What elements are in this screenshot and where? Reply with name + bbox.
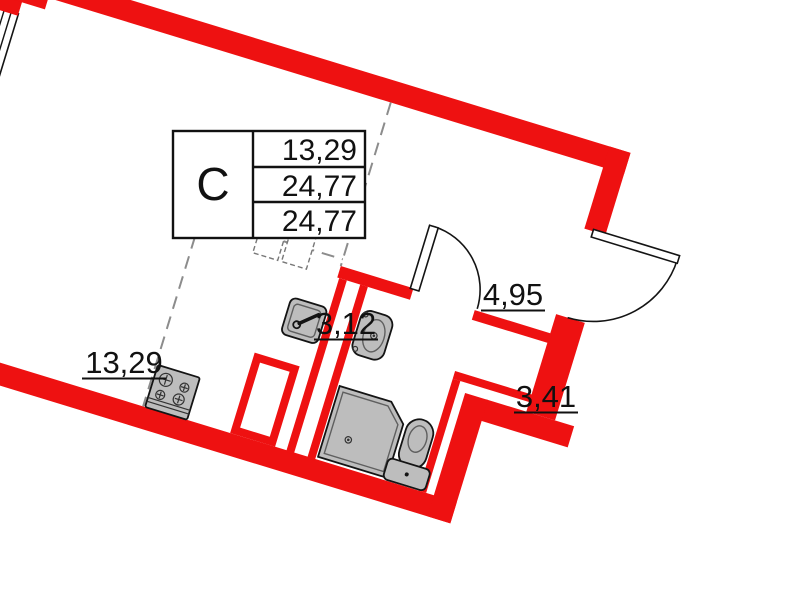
wall-bath-north-right bbox=[472, 310, 552, 343]
legend-total-area: 24,77 bbox=[282, 170, 357, 203]
legend-total-area-with-balcony: 24,77 bbox=[282, 205, 357, 238]
hallway-area-label: 4,95 bbox=[483, 277, 543, 312]
legend-unit-type: С bbox=[196, 158, 229, 210]
shaft-niche-ring bbox=[230, 353, 300, 447]
living-room-area-label: 13,29 bbox=[85, 345, 163, 380]
legend-table: С 13,29 24,77 24,77 bbox=[173, 131, 365, 238]
legend-living-area: 13,29 bbox=[282, 134, 357, 167]
floor-plan-svg: 13,29 3,12 4,95 3,41 С 13,29 24,77 24,77 bbox=[0, 0, 800, 600]
window-icon bbox=[0, 7, 18, 255]
wall-bath-north-left bbox=[337, 266, 413, 300]
plan-rotated-group bbox=[0, 0, 709, 565]
kitchen-area-label: 3,12 bbox=[316, 306, 376, 341]
bathroom-area-label: 3,41 bbox=[516, 379, 576, 414]
